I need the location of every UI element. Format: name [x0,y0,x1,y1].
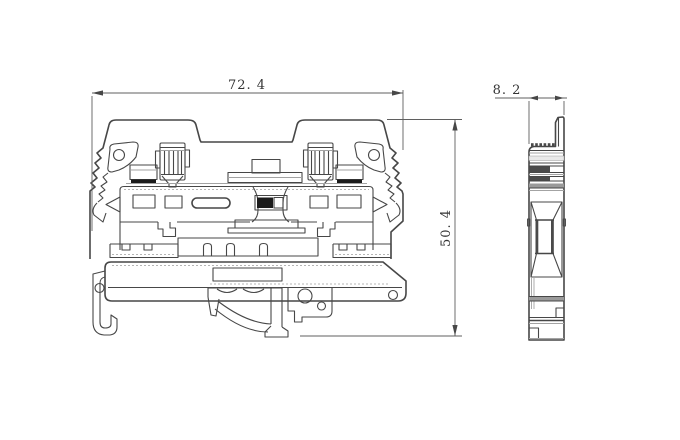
bar-slot [204,244,268,257]
drawing-page: 72. 4 50. 4 8. 2 [0,0,680,440]
terminal-bands [529,151,564,191]
arrowhead [92,90,103,95]
marker-window [165,196,182,208]
mounting-ear-hole [114,150,125,161]
mounting-ear [108,142,138,172]
arrowhead [529,96,538,101]
center-recess [528,202,566,277]
technical-drawing-canvas: 72. 4 50. 4 8. 2 [0,0,680,440]
marker-window [133,195,155,208]
seat-plate [228,228,305,233]
dimension-height-label: 50. 4 [439,209,454,247]
wire-clamp [130,165,157,184]
side-view [528,117,566,340]
tag-slot [192,198,230,208]
front-view [90,120,406,337]
latch-hole-small [318,302,326,310]
dimension-annotations: 72. 4 50. 4 8. 2 [92,78,567,336]
side-lower-detail [529,277,564,339]
side-hook [93,203,106,222]
screw-terminal [156,143,190,187]
dimension-thickness-label: 8. 2 [493,83,522,98]
plate-hole [389,291,398,300]
marker-window [337,195,361,208]
marker-window [310,196,328,208]
arrowhead [452,325,457,336]
tooth-strip [333,244,391,258]
test-socket-slide [274,198,283,209]
arrowhead [392,90,403,95]
dimension-width-label: 72. 4 [228,78,266,93]
din-clip-spring [208,288,288,337]
step-hook [158,222,176,237]
lower-bar [178,238,318,256]
center-pedestal-top [252,160,280,174]
arrowhead [452,120,457,131]
release-flag [106,197,120,212]
label-plate [213,268,282,281]
test-socket [257,198,273,209]
strain-relief-serration [98,173,108,202]
din-clip-latch [288,288,332,322]
arrowhead [555,96,564,101]
housing-outline-left [90,125,109,259]
body-block [120,187,373,251]
